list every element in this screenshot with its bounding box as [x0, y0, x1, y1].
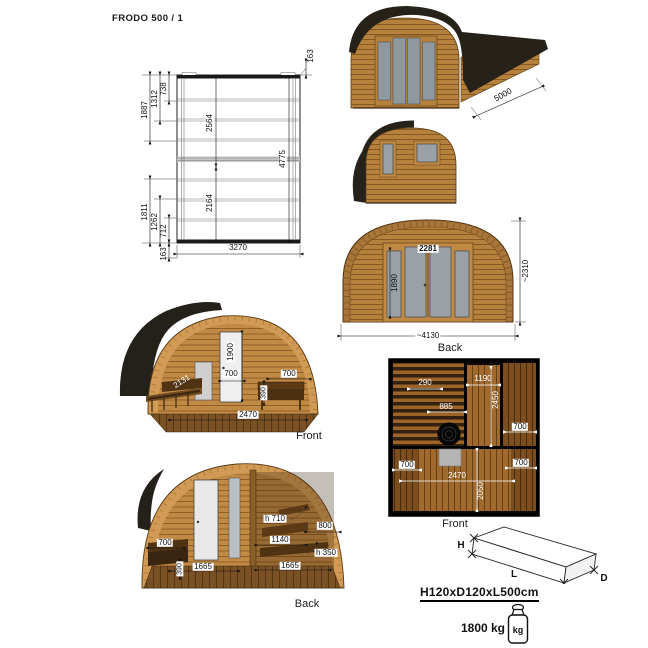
dim-885: 885	[439, 403, 452, 411]
package-size-text: H120xD120xL500cm	[420, 585, 539, 602]
interior-plan-drawing	[383, 348, 553, 533]
perspective-back-drawing	[330, 115, 485, 215]
weight-icon: kg	[504, 603, 532, 647]
dim-390: 390	[260, 386, 267, 401]
dim-712: 712	[160, 224, 168, 237]
dim-1190: 1190	[474, 375, 491, 383]
kg-icon-label: kg	[513, 625, 524, 635]
dim-2470: 2470	[238, 411, 259, 419]
floor-plan-view: 1887 1312 738 163 2564 4775 2164 1811 12…	[138, 42, 323, 272]
dim-4775: 4775	[279, 149, 287, 170]
side-strip-right	[503, 363, 536, 447]
elevation-view: 2281 1890 ~2310 ~4130 Back	[333, 205, 533, 355]
dim-163-top: 163	[307, 49, 315, 62]
perspective-front-drawing	[333, 0, 558, 122]
dim-2164: 2164	[206, 193, 214, 214]
dim-4130: ~4130	[415, 332, 440, 340]
interior-plan-view: 290 1190 2450 885 700 700 700 2470 2050 …	[383, 348, 553, 533]
dim-2564: 2564	[206, 113, 214, 134]
glass-panels	[387, 247, 469, 317]
dim-2470: 2470	[448, 472, 466, 480]
dim-700-bench: 700	[281, 370, 297, 378]
side-strip-bottom-left	[393, 449, 418, 511]
cutaway-back-view: 700 390 1665 1665 h 710 800 1140 h 350 B…	[112, 436, 357, 616]
dim-2310: ~2310	[522, 260, 530, 282]
technical-drawing-sheet: FRODO 500 / 1	[0, 0, 648, 648]
dim-h-label: H	[457, 541, 464, 552]
package-box-view: H L D	[428, 522, 618, 584]
weight-icon-drawing: kg	[504, 603, 532, 647]
dim-1887: 1887	[141, 101, 149, 119]
white-door	[194, 480, 218, 560]
dim-390: 390	[176, 562, 183, 577]
drawing-title: FRODO 500 / 1	[112, 13, 183, 24]
dim-d-label: D	[600, 574, 607, 585]
door-handle	[197, 521, 199, 523]
dim-2050: 2050	[477, 482, 485, 500]
dim-1811: 1811	[141, 203, 149, 220]
dim-h710: h 710	[263, 515, 286, 523]
dim-738: 738	[160, 82, 168, 95]
perspective-back-view	[330, 115, 485, 215]
floor	[150, 414, 318, 432]
dim-800: 800	[317, 522, 333, 530]
floor	[144, 566, 340, 588]
dim-700-top-right: 700	[512, 423, 528, 431]
dim-3270: 3270	[228, 244, 249, 252]
dim-l-label: L	[511, 570, 517, 581]
dim-700: 700	[157, 539, 173, 547]
cutaway-back-caption: Back	[295, 598, 319, 610]
gray-panel	[229, 478, 240, 558]
tall-window	[380, 141, 396, 177]
dim-1665-right: 1665	[280, 562, 301, 570]
stove	[438, 423, 460, 445]
cutaway-front-view: 1900 700 2131 390 700 2470 Front	[118, 296, 353, 446]
dim-1890: 1890	[391, 274, 399, 292]
dim-2281: 2281	[418, 245, 439, 253]
package-box-drawing	[428, 522, 618, 584]
dim-163-bottom: 163	[160, 247, 168, 260]
dim-1665-left: 1665	[193, 563, 214, 571]
dim-h350: h 350	[314, 549, 337, 557]
back-wall	[366, 128, 456, 203]
dim-1900: 1900	[227, 342, 235, 363]
dim-290: 290	[418, 379, 431, 387]
dim-2450: 2450	[492, 391, 500, 409]
dim-700-bottom-left: 700	[399, 461, 415, 469]
square-window	[414, 141, 440, 165]
dim-700-door: 700	[223, 370, 239, 378]
dim-1140: 1140	[270, 536, 290, 544]
floor-plate	[439, 449, 461, 466]
dim-700-bottom-right: 700	[513, 459, 529, 467]
weight-text: 1800 kg	[461, 621, 505, 635]
perspective-front-view: 5000	[333, 0, 558, 122]
